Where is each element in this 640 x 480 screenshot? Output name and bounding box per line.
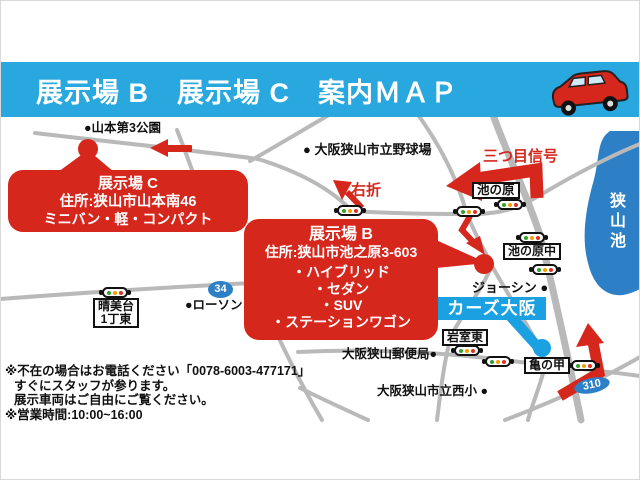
label-joshin: ジョーシン ● (472, 277, 548, 296)
exhibition-map-page: { "header": { "title": "展示場 B 展示場 C 案内ＭＡ… (0, 0, 640, 480)
footer-note-line: ※営業時間:10:00~16:00 (5, 408, 310, 423)
footer-note-line: ※不在の場合はお電話ください「0078-6003-477171」 (5, 364, 310, 379)
label-harumidai: 晴美台 1丁東 (93, 298, 139, 328)
label-nishi-elementary: 大阪狭山市立西小 ● (377, 380, 488, 399)
zigzag-arrow-icon (462, 216, 485, 255)
site-b-item: ・ステーションワゴン (244, 314, 438, 331)
callout-site-c: 展示場 C 住所:狭山市山本南46 ミニバン・軽・コンパクト (8, 170, 248, 232)
label-yamamoto-park: ●山本第3公園 (84, 117, 161, 136)
site-b-item: ・SUV (244, 297, 438, 314)
label-kamenoko: 亀の甲 (524, 357, 570, 374)
site-b-item: ・ハイブリッド (244, 264, 438, 281)
footer-note-line: すぐにスタッフが参ります。 (5, 379, 310, 394)
label-baseball-stadium: ● 大阪狭山市立野球場 (303, 139, 431, 158)
site-c-address: 住所:狭山市山本南46 (8, 193, 248, 211)
label-sayama-lake: 狭山池 (603, 192, 627, 252)
callout-site-b: 展示場 B 住所:狭山市池之原3-603 ・ハイブリッド ・セダン ・SUV ・… (244, 219, 438, 340)
label-right-turn: 右折 (351, 179, 381, 200)
site-c-dot (78, 139, 98, 159)
traffic-signal-icon (454, 345, 480, 356)
site-b-dot (474, 254, 494, 274)
label-harumidai-line2: 1丁東 (98, 313, 134, 326)
cars-osaka-marker (505, 315, 551, 357)
traffic-signal-icon (519, 232, 545, 243)
site-c-note: ミニバン・軽・コンパクト (8, 211, 248, 228)
label-post-office: 大阪狭山郵便局● (342, 343, 437, 362)
traffic-signal-icon (532, 264, 558, 275)
label-ikenohara-naka: 池の原中 (503, 243, 561, 260)
label-third-signal: 三つ目信号 (483, 145, 558, 166)
site-c-title: 展示場 C (8, 175, 248, 193)
road (416, 112, 466, 211)
traffic-signal-icon (337, 205, 363, 216)
footer-notes: ※不在の場合はお電話ください「0078-6003-477171」 すぐにスタッフ… (5, 364, 310, 422)
traffic-signal-icon (485, 356, 511, 367)
page-title: 展示場 B 展示場 C 案内ＭＡＰ (36, 71, 458, 110)
cars-osaka-dot (533, 339, 551, 357)
traffic-signal-icon (571, 360, 597, 371)
traffic-signal-icon (497, 199, 523, 210)
cars-osaka-badge: カーズ大阪 (438, 297, 546, 320)
car-icon (543, 68, 631, 118)
site-b-address: 住所:狭山市池之原3-603 (244, 244, 438, 261)
site-b-item: ・セダン (244, 281, 438, 298)
label-iwamuro-higashi: 岩室東 (442, 329, 488, 346)
traffic-signal-icon (456, 206, 482, 217)
label-ikenohara: 池の原 (472, 182, 520, 199)
traffic-signal-icon (102, 287, 128, 298)
route-34-badge: 34 (208, 281, 233, 298)
footer-note-line: 展示車両はご自由にご覧ください。 (5, 393, 310, 408)
site-b-title: 展示場 B (244, 226, 438, 244)
